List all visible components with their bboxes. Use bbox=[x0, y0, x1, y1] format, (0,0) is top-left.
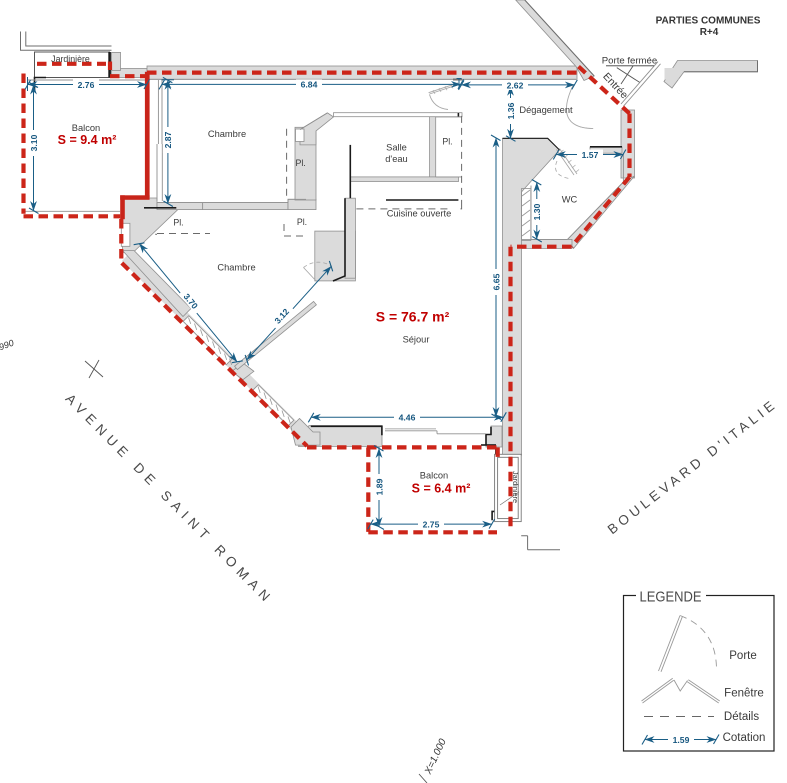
svg-text:Porte: Porte bbox=[729, 650, 757, 662]
svg-text:1.57: 1.57 bbox=[582, 150, 599, 160]
svg-text:X=1.000: X=1.000 bbox=[423, 737, 449, 777]
svg-text:BOULEVARD D'ITALIE: BOULEVARD D'ITALIE bbox=[605, 396, 780, 537]
svg-text:3.10: 3.10 bbox=[29, 134, 39, 151]
svg-text:Porte fermée: Porte fermée bbox=[602, 56, 657, 67]
svg-text:R+4: R+4 bbox=[700, 27, 719, 38]
svg-text:WC: WC bbox=[562, 195, 578, 205]
svg-text:Balcon: Balcon bbox=[420, 471, 448, 481]
svg-text:Jardinière: Jardinière bbox=[51, 54, 90, 64]
svg-text:Pl.: Pl. bbox=[173, 218, 183, 228]
svg-text:S = 9.4 m²: S = 9.4 m² bbox=[58, 133, 117, 147]
svg-text:Balcon: Balcon bbox=[72, 123, 100, 133]
svg-text:1.89: 1.89 bbox=[374, 478, 384, 495]
svg-text:Détails: Détails bbox=[724, 711, 759, 723]
svg-text:6.65: 6.65 bbox=[491, 273, 501, 290]
svg-text:Dégagement: Dégagement bbox=[519, 105, 573, 115]
svg-text:Salle: Salle bbox=[386, 143, 407, 153]
svg-text:4.46: 4.46 bbox=[399, 413, 416, 423]
svg-text:Pl.: Pl. bbox=[442, 137, 452, 147]
svg-text:S = 76.7 m²: S = 76.7 m² bbox=[376, 309, 450, 325]
svg-text:1.30: 1.30 bbox=[532, 203, 542, 220]
svg-text:Entrée: Entrée bbox=[600, 71, 630, 102]
svg-text:Cuisine ouverte: Cuisine ouverte bbox=[387, 209, 452, 219]
svg-text:2.75: 2.75 bbox=[423, 519, 440, 529]
svg-text:2.87: 2.87 bbox=[163, 131, 173, 148]
svg-text:Jardinière: Jardinière bbox=[511, 471, 520, 503]
svg-text:LEGENDE: LEGENDE bbox=[640, 589, 702, 606]
svg-text:1.36: 1.36 bbox=[506, 102, 516, 119]
svg-text:Chambre: Chambre bbox=[217, 263, 255, 273]
svg-text:S = 6.4 m²: S = 6.4 m² bbox=[412, 482, 471, 496]
svg-text:Séjour: Séjour bbox=[403, 335, 430, 345]
svg-text:2.76: 2.76 bbox=[78, 80, 95, 90]
svg-text:6.84: 6.84 bbox=[301, 80, 318, 90]
svg-text:Fenêtre: Fenêtre bbox=[724, 688, 764, 700]
svg-text:PARTIES COMMUNES: PARTIES COMMUNES bbox=[656, 16, 761, 27]
svg-text:AVENUE DE SAINT ROMAN: AVENUE DE SAINT ROMAN bbox=[63, 391, 277, 608]
svg-text:1.59: 1.59 bbox=[673, 735, 690, 745]
svg-text:Cotation: Cotation bbox=[723, 732, 766, 744]
svg-text:Chambre: Chambre bbox=[208, 129, 246, 139]
svg-text:990: 990 bbox=[0, 338, 15, 353]
svg-text:Pl.: Pl. bbox=[297, 217, 307, 227]
svg-text:d'eau: d'eau bbox=[385, 154, 407, 164]
svg-text:2.62: 2.62 bbox=[507, 80, 524, 90]
svg-text:Pl.: Pl. bbox=[295, 158, 305, 168]
